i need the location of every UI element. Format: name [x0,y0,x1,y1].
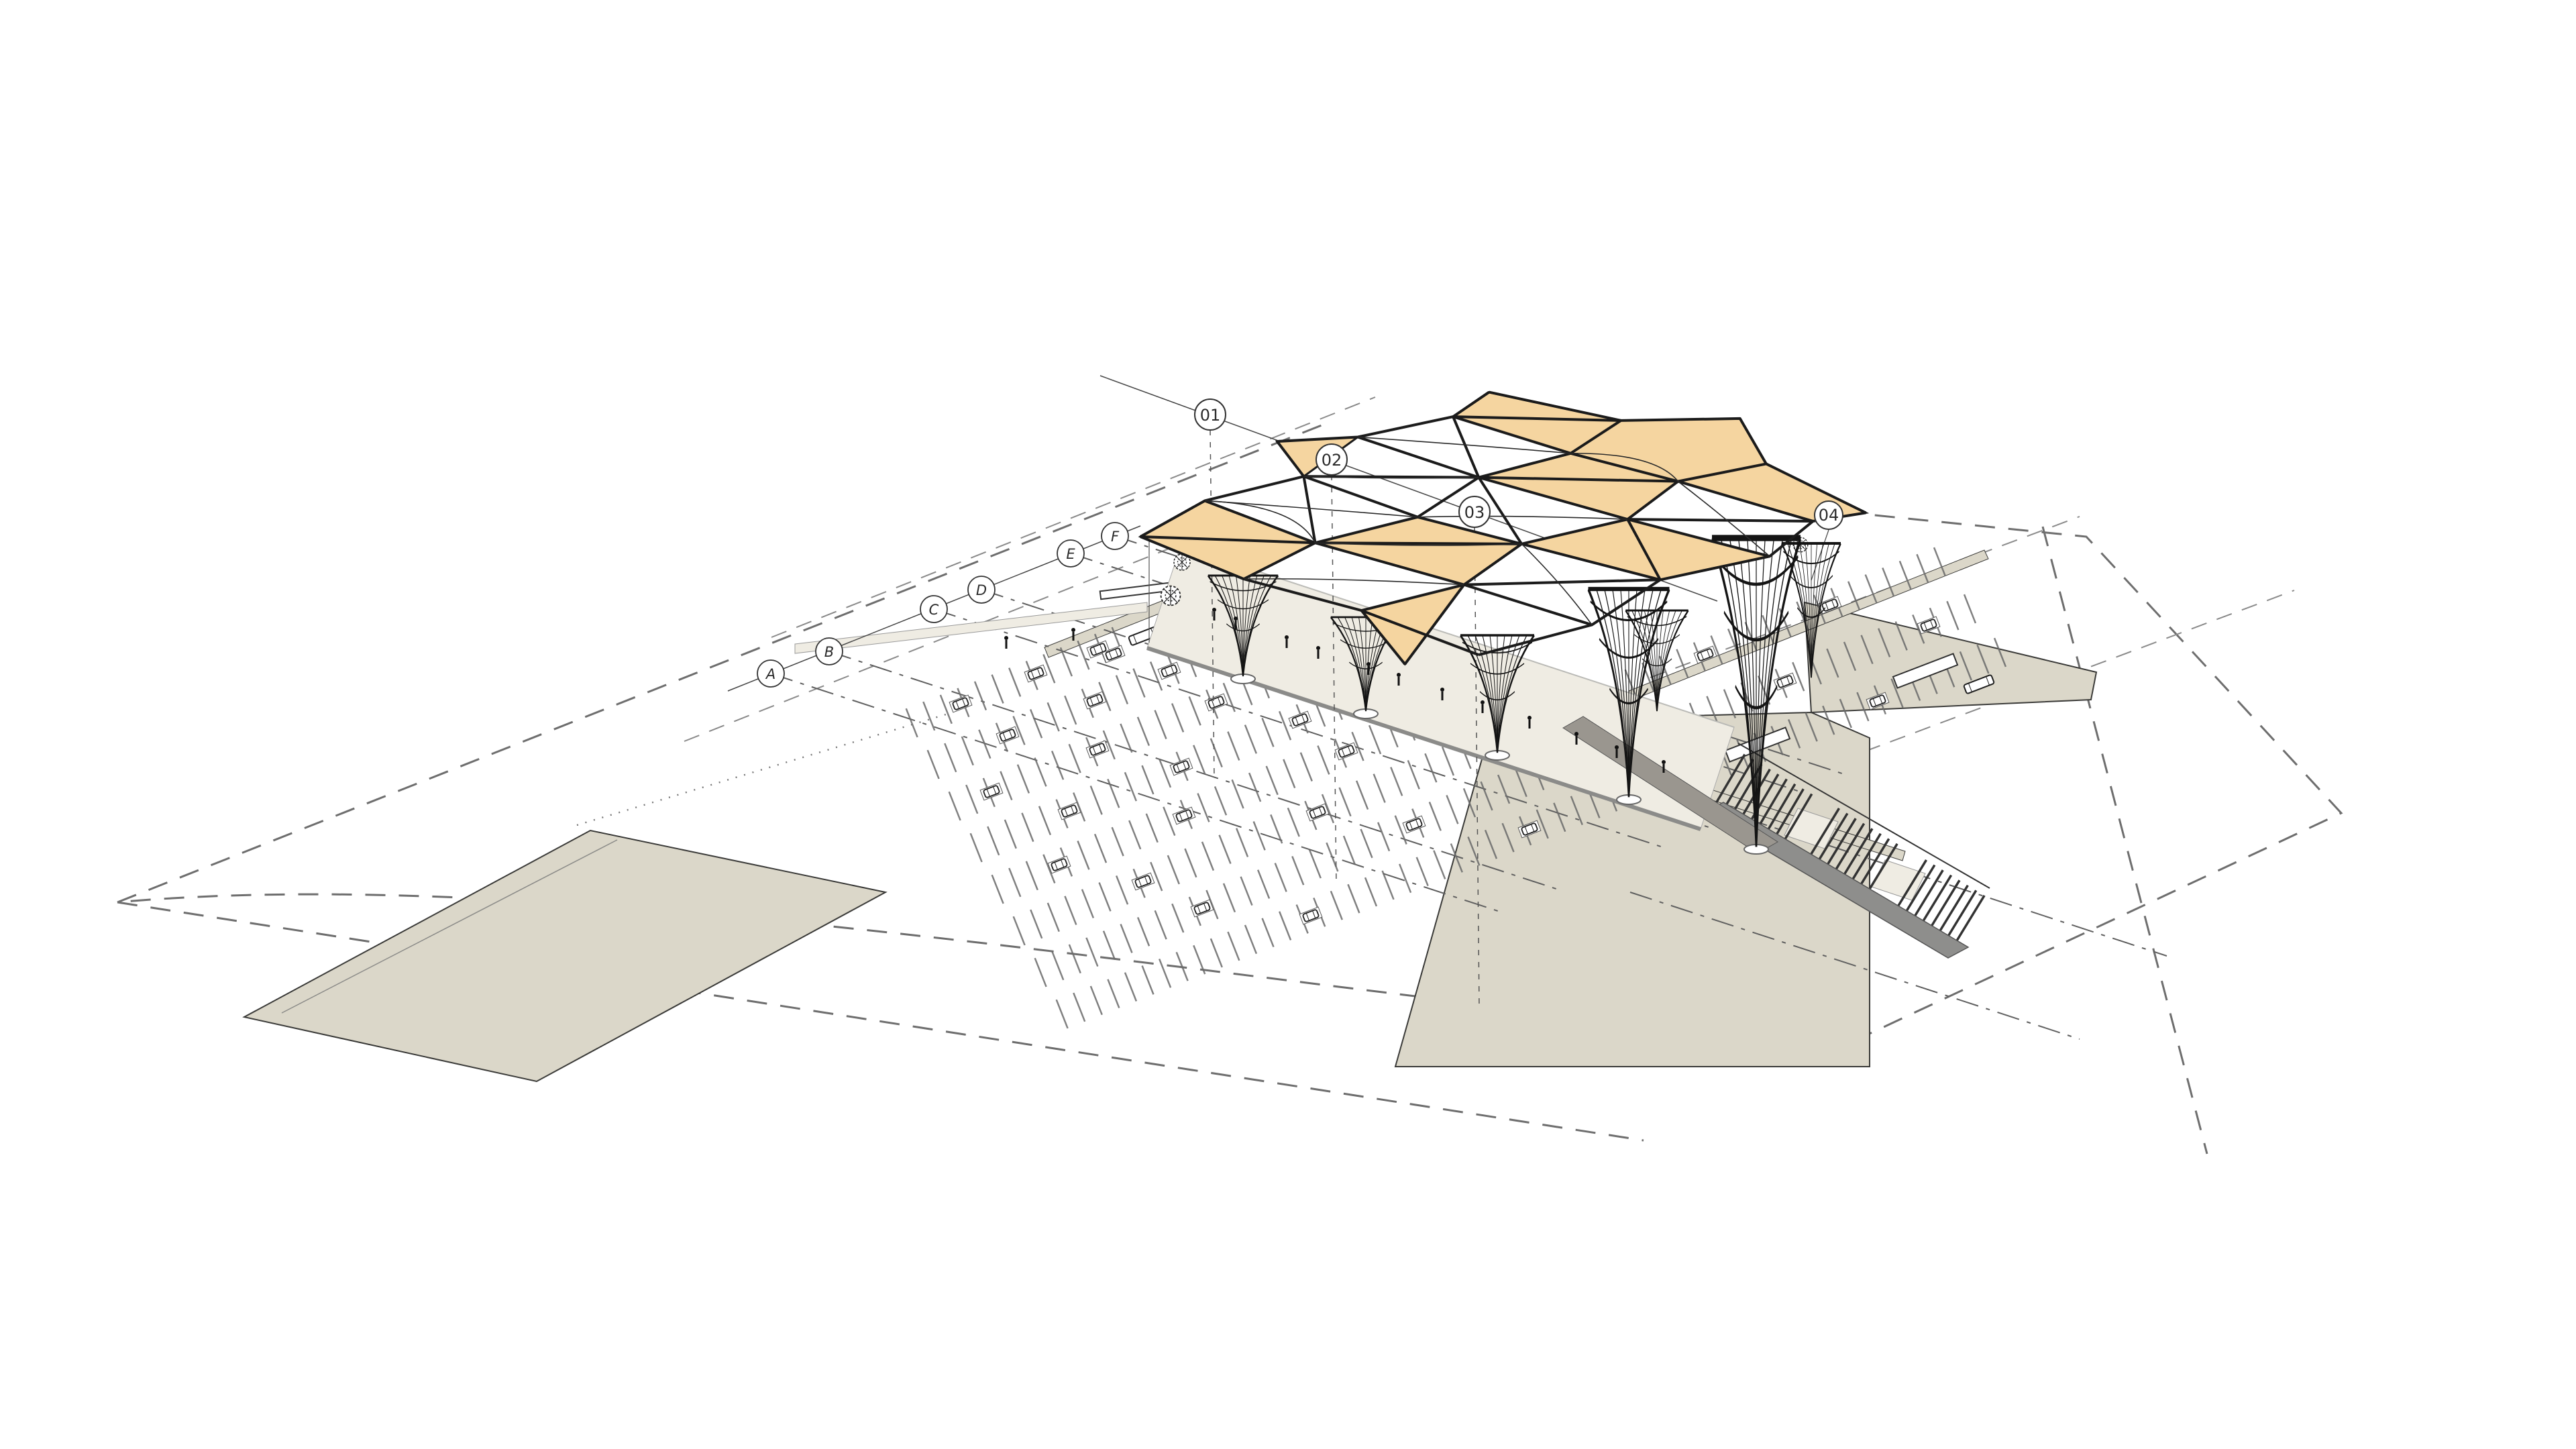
site-axonometric-svg: 01 02 03 04 A B C D [0,0,2576,1449]
grid-bubble-F: F [1102,523,1128,549]
grid-bubble-D-label: D [976,582,987,598]
grid-bubble-B: B [816,638,843,665]
car-glyph [1170,758,1193,775]
grid-bubble-D: D [968,576,995,603]
car-glyph [1289,711,1311,729]
person-glyph [1004,636,1008,649]
canopy-panel [1242,425,1382,477]
grid-bubble-A-label: A [765,666,775,682]
grid-bubble-01-label: 01 [1200,406,1221,425]
grid-bubble-04: 04 [1815,501,1843,529]
grid-bubble-E: E [1057,540,1084,567]
car-glyph [1024,665,1047,682]
grid-bubble-C: C [920,596,947,623]
dotted-path-line [577,712,953,825]
grid-bubble-04-label: 04 [1819,506,1839,525]
boundary-inner-steep-line [2043,527,2207,1154]
architectural-drawing-canvas: 01 02 03 04 A B C D [0,0,2576,1449]
left-parcel [244,830,885,1081]
boundary-upper-left-edge [117,423,1328,902]
car-glyph [1403,816,1426,833]
grid-bubble-01: 01 [1195,399,1226,430]
car-glyph [1173,807,1195,824]
grid-bubble-02: 02 [1316,444,1347,475]
car-glyph [1917,616,1940,634]
grid-bubble-C-label: C [929,602,939,618]
grid-bubble-F-label: F [1111,529,1120,545]
car-glyph [1048,856,1071,873]
grid-bubbles-side: A B C D E F [757,523,1128,687]
car-glyph [1058,802,1081,820]
car-glyph [1306,804,1329,821]
grid-bubble-02-label: 02 [1322,451,1342,470]
car-glyph [1335,743,1358,760]
car-glyph [1191,900,1214,917]
car-glyph [1083,692,1106,709]
car-glyph [980,783,1003,800]
grid-bubble-A: A [757,660,784,687]
grid-bubble-03-label: 03 [1464,503,1485,522]
grid-bubble-E-label: E [1066,546,1075,562]
tree-glyph [1161,586,1181,606]
car-glyph [1086,741,1109,758]
car-glyph [996,727,1019,744]
grid-bubble-03: 03 [1459,496,1490,527]
grid-bubble-B-label: B [824,644,834,660]
car-glyph [949,695,972,712]
boundary-right-edge [1841,512,2341,1041]
car-glyph [1299,907,1322,924]
